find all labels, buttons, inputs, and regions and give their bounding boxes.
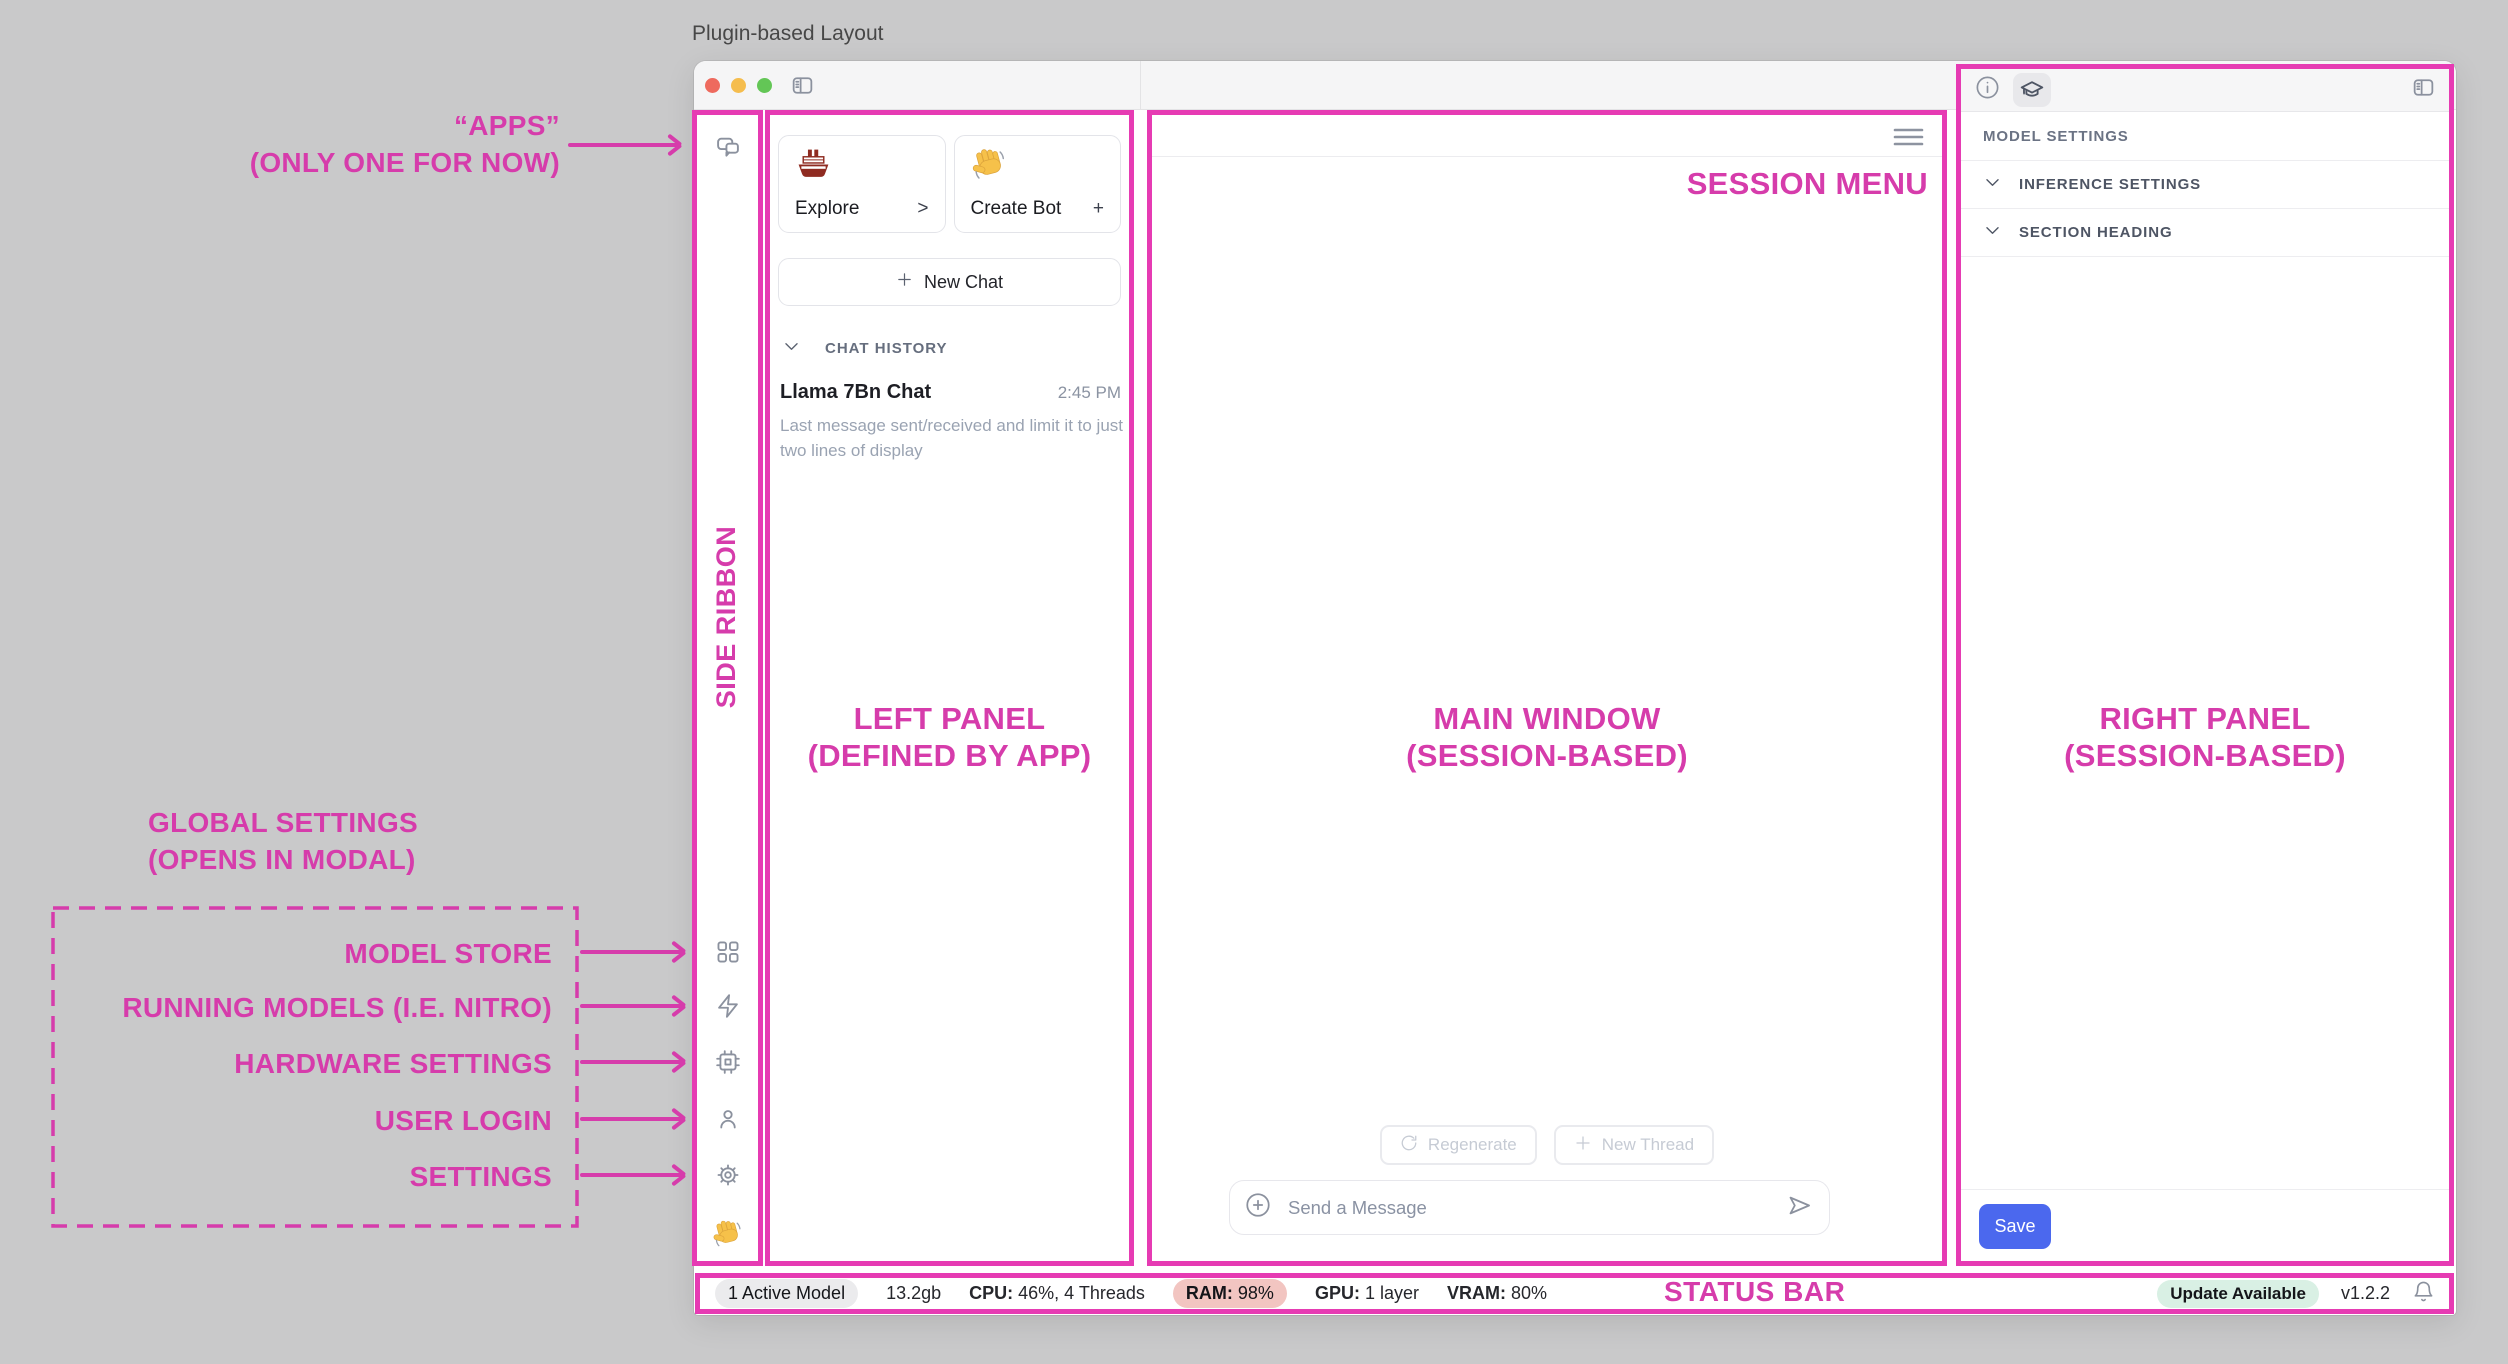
lightning-icon[interactable] (715, 993, 741, 1024)
update-available-badge[interactable]: Update Available (2157, 1280, 2319, 1308)
annotation-hardware-settings: HARDWARE SETTINGS (234, 1045, 552, 1082)
refresh-icon (1400, 1134, 1418, 1157)
message-input[interactable] (1286, 1196, 1772, 1220)
arrow-to-apps (568, 143, 680, 147)
new-chat-button[interactable]: New Chat (778, 258, 1121, 306)
chat-preview: Last message sent/received and limit it … (780, 413, 1140, 463)
annotation-model-store: MODEL STORE (344, 935, 552, 972)
chevron-down-icon (782, 337, 801, 360)
plus-glyph: + (1093, 198, 1104, 220)
circle-plus-icon[interactable] (1244, 1191, 1272, 1224)
chevron-right-glyph: > (917, 198, 928, 220)
traffic-minimize-button[interactable] (731, 78, 746, 93)
chat-time: 2:45 PM (1058, 383, 1121, 403)
explore-card[interactable]: Explore > (778, 135, 946, 233)
explore-card-label: Explore (795, 198, 859, 220)
chevron-down-icon (1983, 173, 2002, 197)
ram-status-badge: RAM: 98% (1173, 1279, 1287, 1308)
annotation-status-bar: STATUS BAR (1664, 1276, 1845, 1308)
mockup-canvas: Plugin-based Layout (0, 0, 2508, 1364)
chat-list-item[interactable]: Llama 7Bn Chat 2:45 PM Last message sent… (778, 381, 1121, 463)
chat-bubbles-icon[interactable] (714, 134, 741, 166)
annotation-left-panel: LEFT PANEL (DEFINED BY APP) (770, 700, 1129, 774)
annotation-main-window: MAIN WINDOW (SESSION-BASED) (1152, 700, 1942, 774)
annotation-running-models: RUNNING MODELS (I.E. NITRO) (122, 989, 552, 1026)
annotation-settings: SETTINGS (410, 1158, 552, 1195)
chat-history-header[interactable]: CHAT HISTORY (778, 337, 1121, 360)
left-panel: Explore > Create Bot + (765, 110, 1134, 1266)
wave-emoji[interactable] (712, 1218, 744, 1255)
annotation-user-login: USER LOGIN (375, 1102, 552, 1139)
wave-emoji (971, 170, 1008, 187)
send-icon[interactable] (1786, 1192, 1813, 1224)
regenerate-label: Regenerate (1428, 1135, 1517, 1155)
divider (1961, 1189, 2449, 1190)
traffic-close-button[interactable] (705, 78, 720, 93)
arrow-to-running-models (580, 1004, 684, 1008)
new-chat-label: New Chat (924, 272, 1003, 293)
create-bot-card-label: Create Bot (971, 198, 1062, 220)
section-heading-label: SECTION HEADING (2019, 224, 2173, 241)
app-version: v1.2.2 (2341, 1283, 2390, 1304)
create-bot-card[interactable]: Create Bot + (954, 135, 1122, 233)
right-panel: MODEL SETTINGS INFERENCE SETTINGS SECTIO… (1956, 64, 2454, 1266)
info-icon[interactable] (1974, 74, 2001, 106)
cpu-status: CPU: 46%, 4 Threads (969, 1283, 1145, 1304)
chevron-down-icon (1983, 221, 2002, 245)
divider (1961, 256, 2449, 257)
chat-title: Llama 7Bn Chat (780, 381, 931, 404)
memory-usage: 13.2gb (886, 1283, 941, 1304)
chat-history-label: CHAT HISTORY (825, 340, 948, 357)
titlebar-divider (1140, 61, 1141, 109)
save-button[interactable]: Save (1979, 1204, 2051, 1249)
traffic-zoom-button[interactable] (757, 78, 772, 93)
annotation-session-menu: SESSION MENU (1687, 166, 1928, 202)
new-thread-button[interactable]: New Thread (1554, 1125, 1714, 1165)
main-window: SESSION MENU MAIN WINDOW (SESSION-BASED)… (1147, 110, 1947, 1266)
arrow-to-settings (580, 1173, 684, 1177)
status-bar: 1 Active Model 13.2gb CPU: 46%, 4 Thread… (695, 1273, 2454, 1314)
inference-settings-section[interactable]: INFERENCE SETTINGS (1961, 161, 2449, 208)
regenerate-button[interactable]: Regenerate (1380, 1125, 1537, 1165)
inference-settings-label: INFERENCE SETTINGS (2019, 176, 2201, 193)
user-icon[interactable] (715, 1106, 741, 1137)
vram-status: VRAM: 80% (1447, 1283, 1547, 1304)
message-composer (1229, 1180, 1830, 1235)
panel-toggle-icon[interactable] (2411, 75, 2436, 105)
annotation-global-settings: GLOBAL SETTINGS (OPENS IN MODAL) (148, 804, 418, 878)
annotation-side-ribbon: SIDE RIBBON (711, 467, 743, 767)
sidebar-toggle-icon[interactable] (790, 73, 815, 103)
annotation-apps: “APPS” (ONLY ONE FOR NOW) (200, 107, 560, 181)
arrow-to-model-store (580, 950, 684, 954)
active-model-badge: 1 Active Model (715, 1279, 858, 1308)
section-heading-section[interactable]: SECTION HEADING (1961, 209, 2449, 256)
ship-emoji (795, 170, 832, 187)
cpu-chip-icon[interactable] (715, 1049, 741, 1080)
arrow-to-hardware-settings (580, 1060, 684, 1064)
annotation-right-panel: RIGHT PANEL (SESSION-BASED) (1961, 700, 2449, 774)
right-panel-header (1961, 69, 2449, 112)
main-window-header (1152, 115, 1942, 157)
plus-icon (896, 271, 913, 293)
grid-icon[interactable] (715, 939, 741, 970)
bell-icon[interactable] (2412, 1280, 2435, 1308)
new-thread-label: New Thread (1602, 1135, 1694, 1155)
model-settings-header: MODEL SETTINGS (1983, 128, 2129, 145)
arrow-to-user-login (580, 1117, 684, 1121)
graduation-cap-tab[interactable] (2013, 73, 2051, 107)
plus-icon (1574, 1134, 1592, 1157)
menu-icon[interactable] (1893, 125, 1924, 154)
gear-icon[interactable] (715, 1162, 741, 1193)
gpu-status: GPU: 1 layer (1315, 1283, 1419, 1304)
page-title: Plugin-based Layout (692, 22, 883, 46)
